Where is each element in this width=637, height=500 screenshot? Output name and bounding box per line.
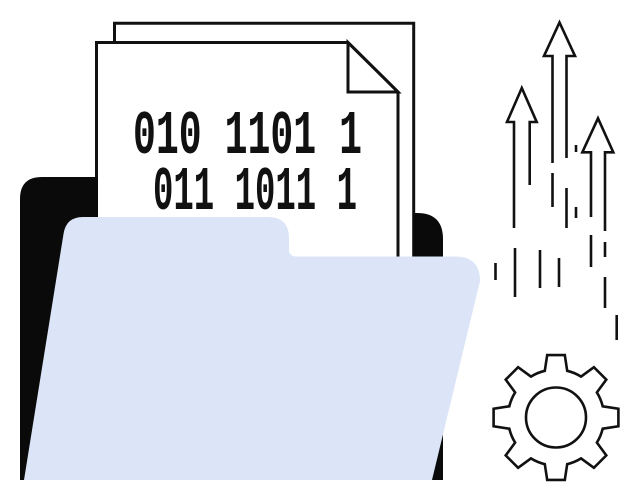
up-arrow-left-icon xyxy=(507,88,537,228)
gear-icon xyxy=(494,355,619,480)
illustration-canvas: 010 1101 1 011 1011 1 xyxy=(0,0,637,500)
folder-binary-illustration: 010 1101 1 011 1011 1 xyxy=(0,0,637,500)
up-arrow-center-icon xyxy=(544,23,575,164)
gear-inner-circle xyxy=(526,388,586,448)
up-arrows-icon xyxy=(496,23,617,341)
up-arrow-right-icon xyxy=(582,118,613,231)
